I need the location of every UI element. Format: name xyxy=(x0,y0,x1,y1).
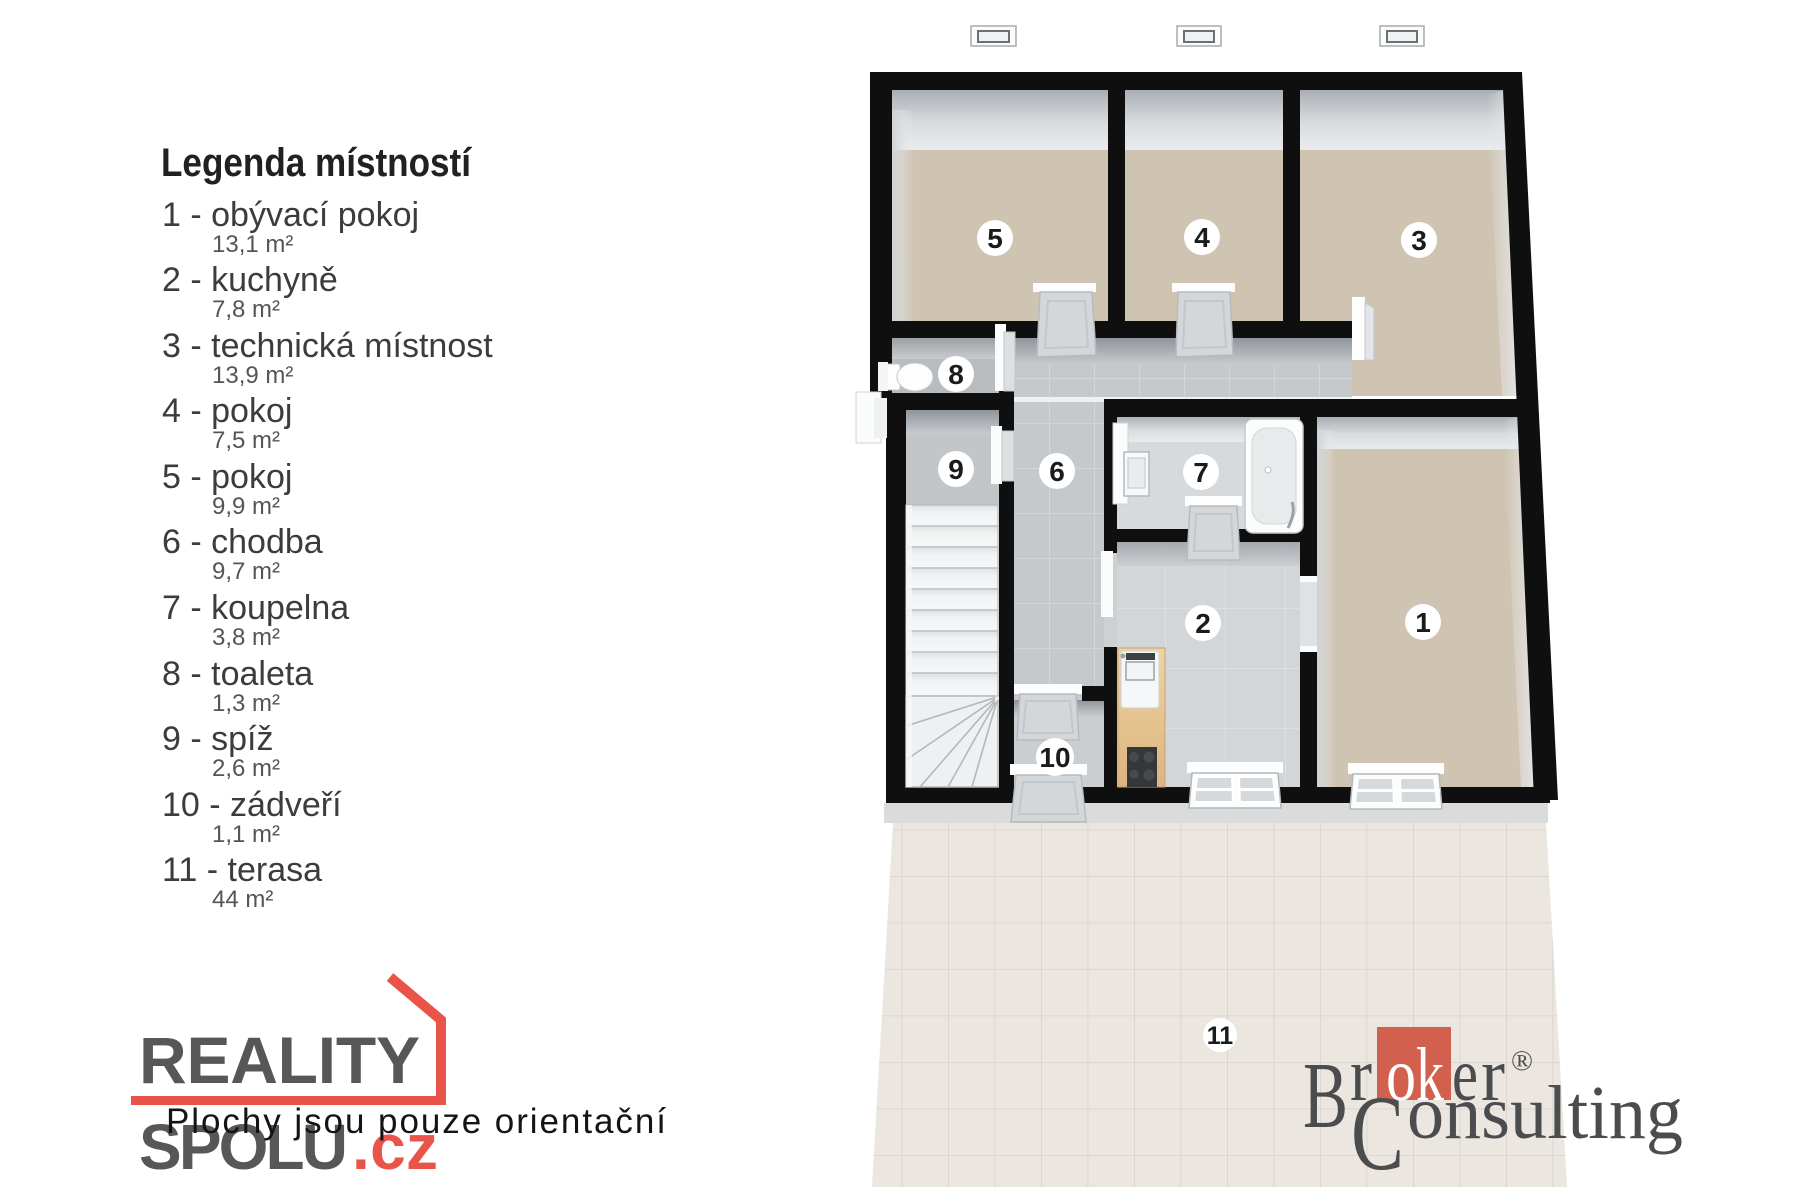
svg-text:7 - koupelna: 7 - koupelna xyxy=(162,589,349,627)
svg-text:B: B xyxy=(1303,1044,1348,1148)
svg-text:6: 6 xyxy=(1049,456,1065,487)
svg-text:1 - obývací pokoj: 1 - obývací pokoj xyxy=(162,196,419,234)
svg-text:2,6 m²: 2,6 m² xyxy=(212,755,280,782)
svg-text:44 m²: 44 m² xyxy=(212,886,273,913)
svg-text:7,5 m²: 7,5 m² xyxy=(212,427,280,454)
svg-text:9 - spíž: 9 - spíž xyxy=(162,720,273,758)
svg-text:11: 11 xyxy=(1207,1022,1234,1050)
svg-text:9,9 m²: 9,9 m² xyxy=(212,493,280,520)
svg-text:REALITY: REALITY xyxy=(139,1023,420,1097)
svg-text:4: 4 xyxy=(1194,222,1210,253)
svg-text:7,8 m²: 7,8 m² xyxy=(212,296,280,323)
svg-text:1: 1 xyxy=(1415,607,1431,638)
svg-text:onsulting: onsulting xyxy=(1407,1071,1683,1155)
svg-text:2: 2 xyxy=(1195,608,1211,639)
svg-text:5 - pokoj: 5 - pokoj xyxy=(162,458,292,496)
svg-text:9: 9 xyxy=(948,454,964,485)
svg-text:C: C xyxy=(1351,1075,1404,1193)
svg-text:5: 5 xyxy=(987,223,1003,254)
svg-text:1,1 m²: 1,1 m² xyxy=(212,821,280,848)
svg-text:10: 10 xyxy=(1039,742,1070,773)
svg-text:13,9 m²: 13,9 m² xyxy=(212,362,293,389)
svg-text:1,3 m²: 1,3 m² xyxy=(212,690,280,717)
svg-text:3,8 m²: 3,8 m² xyxy=(212,624,280,651)
svg-text:8: 8 xyxy=(948,359,964,390)
svg-text:6 - chodba: 6 - chodba xyxy=(162,523,323,561)
svg-text:8 - toaleta: 8 - toaleta xyxy=(162,655,313,693)
svg-text:3: 3 xyxy=(1411,225,1427,256)
svg-text:13,1 m²: 13,1 m² xyxy=(212,231,293,258)
svg-text:11 - terasa: 11 - terasa xyxy=(162,851,322,889)
svg-text:2 - kuchyně: 2 - kuchyně xyxy=(162,261,338,299)
svg-text:3 - technická místnost: 3 - technická místnost xyxy=(162,327,493,365)
svg-text:7: 7 xyxy=(1193,457,1209,488)
svg-text:Legenda místností: Legenda místností xyxy=(161,141,473,185)
svg-text:10 - zádveří: 10 - zádveří xyxy=(162,786,342,824)
svg-text:Plochy jsou pouze orientační: Plochy jsou pouze orientační xyxy=(166,1102,666,1141)
svg-text:4 - pokoj: 4 - pokoj xyxy=(162,392,292,430)
svg-text:9,7 m²: 9,7 m² xyxy=(212,558,280,585)
